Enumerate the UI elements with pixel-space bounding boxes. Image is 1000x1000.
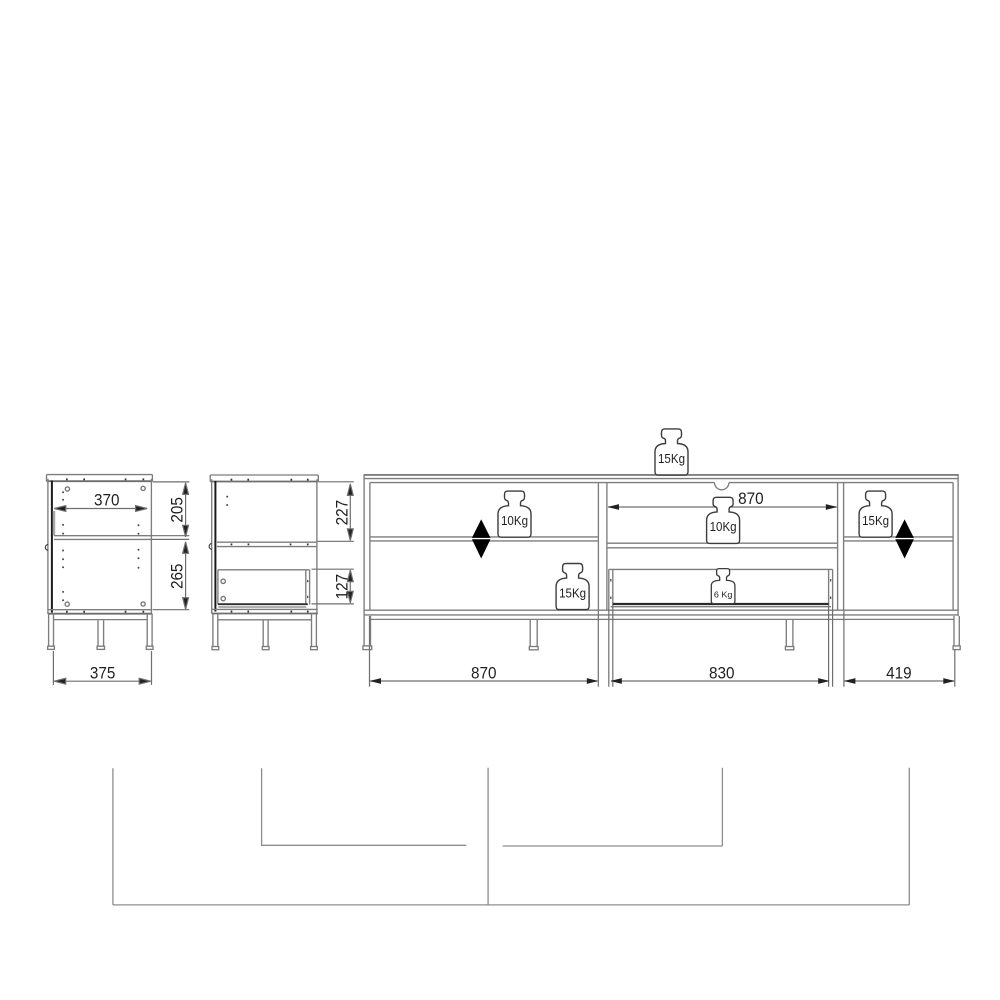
svg-text:419: 419	[886, 665, 912, 683]
svg-text:830: 830	[709, 665, 735, 683]
svg-text:127: 127	[334, 574, 352, 600]
svg-text:15Kg: 15Kg	[862, 513, 889, 528]
svg-text:870: 870	[738, 490, 764, 508]
svg-text:15Kg: 15Kg	[559, 586, 586, 601]
svg-text:375: 375	[90, 665, 116, 683]
svg-text:370: 370	[94, 492, 120, 510]
svg-text:10Kg: 10Kg	[501, 513, 528, 528]
svg-text:10Kg: 10Kg	[710, 519, 737, 534]
svg-text:227: 227	[334, 500, 352, 526]
svg-text:870: 870	[471, 665, 497, 683]
svg-text:265: 265	[169, 564, 187, 590]
svg-text:6 Kg: 6 Kg	[714, 590, 733, 599]
svg-text:205: 205	[169, 497, 187, 523]
svg-text:15Kg: 15Kg	[658, 451, 685, 466]
